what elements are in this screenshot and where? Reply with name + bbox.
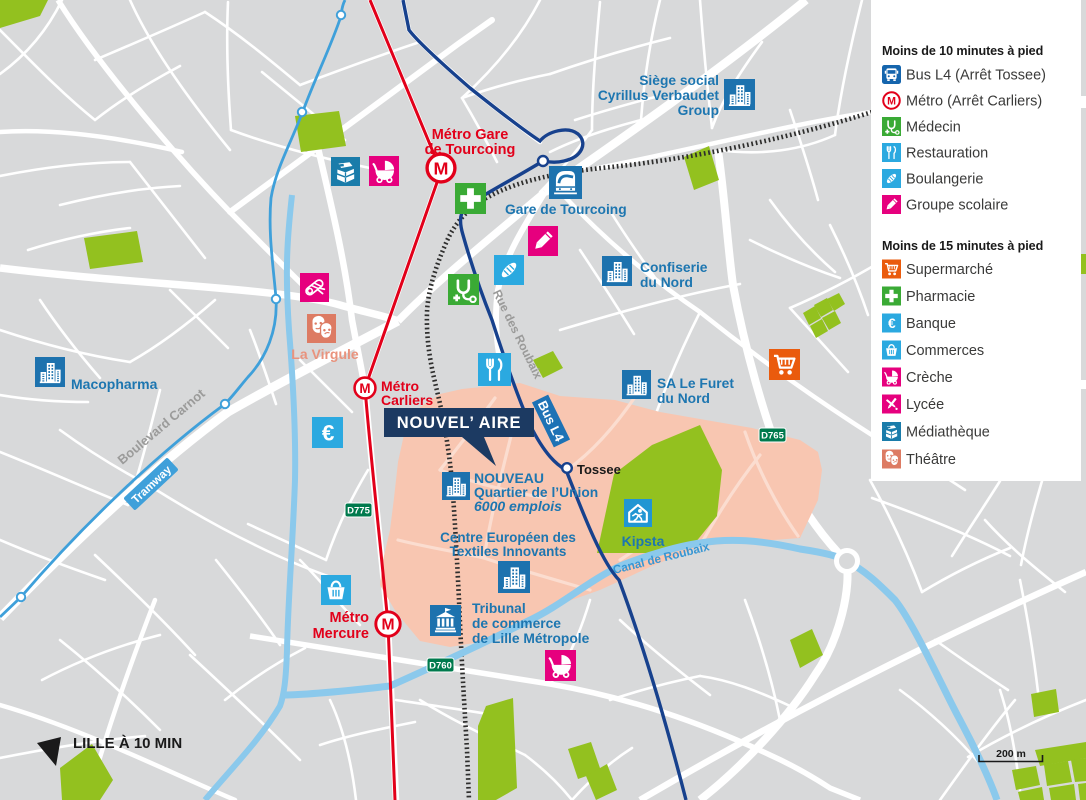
svg-text:D765: D765 xyxy=(761,431,784,442)
svg-text:NOUVEL’ AIRE: NOUVEL’ AIRE xyxy=(397,414,522,432)
svg-text:200 m: 200 m xyxy=(996,748,1026,760)
svg-text:Confiserie: Confiserie xyxy=(640,260,708,275)
svg-text:Restauration: Restauration xyxy=(906,146,988,162)
svg-text:Carliers: Carliers xyxy=(381,392,433,408)
svg-text:Bus L4 (Arrêt Tossee): Bus L4 (Arrêt Tossee) xyxy=(906,68,1046,84)
svg-text:Tribunal: Tribunal xyxy=(472,601,526,616)
svg-text:D760: D760 xyxy=(429,661,452,672)
svg-text:D775: D775 xyxy=(347,506,370,517)
svg-text:SA Le Furet: SA Le Furet xyxy=(657,376,734,391)
svg-text:de Tourcoing: de Tourcoing xyxy=(425,142,516,158)
svg-text:6000 emplois: 6000 emplois xyxy=(474,498,562,514)
svg-text:Siège social: Siège social xyxy=(639,73,719,88)
svg-text:Métro (Arrêt Carliers): Métro (Arrêt Carliers) xyxy=(906,94,1042,110)
svg-text:de Lille Métropole: de Lille Métropole xyxy=(472,631,590,646)
svg-text:Boulangerie: Boulangerie xyxy=(906,172,983,188)
svg-text:Moins de 10 minutes à pied: Moins de 10 minutes à pied xyxy=(882,44,1043,58)
svg-text:Médiathèque: Médiathèque xyxy=(906,425,990,441)
svg-text:La Virgule: La Virgule xyxy=(291,346,359,362)
svg-text:Tossee: Tossee xyxy=(577,462,621,477)
svg-text:Banque: Banque xyxy=(906,316,956,332)
svg-text:Textiles Innovants: Textiles Innovants xyxy=(450,544,567,559)
svg-text:Pharmacie: Pharmacie xyxy=(906,289,975,305)
svg-text:Macopharma: Macopharma xyxy=(71,376,158,392)
svg-text:de commerce: de commerce xyxy=(472,616,561,631)
svg-text:Mercure: Mercure xyxy=(313,626,369,642)
svg-text:Group: Group xyxy=(678,103,719,118)
svg-text:LILLE À 10 MIN: LILLE À 10 MIN xyxy=(73,735,182,752)
svg-text:Supermarché: Supermarché xyxy=(906,262,993,278)
svg-text:Théâtre: Théâtre xyxy=(906,452,956,468)
svg-text:Médecin: Médecin xyxy=(906,120,961,136)
svg-text:Cyrillus Verbaudet: Cyrillus Verbaudet xyxy=(598,88,720,103)
svg-text:Métro Gare: Métro Gare xyxy=(432,127,509,143)
svg-text:Groupe scolaire: Groupe scolaire xyxy=(906,198,1008,214)
svg-text:Crèche: Crèche xyxy=(906,370,953,386)
svg-text:Centre Européen des: Centre Européen des xyxy=(440,530,576,545)
svg-text:Kipsta: Kipsta xyxy=(622,533,665,549)
svg-text:du Nord: du Nord xyxy=(640,275,693,290)
svg-text:Lycée: Lycée xyxy=(906,397,944,413)
svg-text:Moins de 15 minutes à pied: Moins de 15 minutes à pied xyxy=(882,239,1043,253)
svg-text:Métro: Métro xyxy=(330,610,370,626)
svg-text:NOUVEAU: NOUVEAU xyxy=(474,470,544,486)
svg-text:du Nord: du Nord xyxy=(657,391,710,406)
svg-text:Gare de Tourcoing: Gare de Tourcoing xyxy=(505,202,627,217)
svg-text:Commerces: Commerces xyxy=(906,343,984,359)
